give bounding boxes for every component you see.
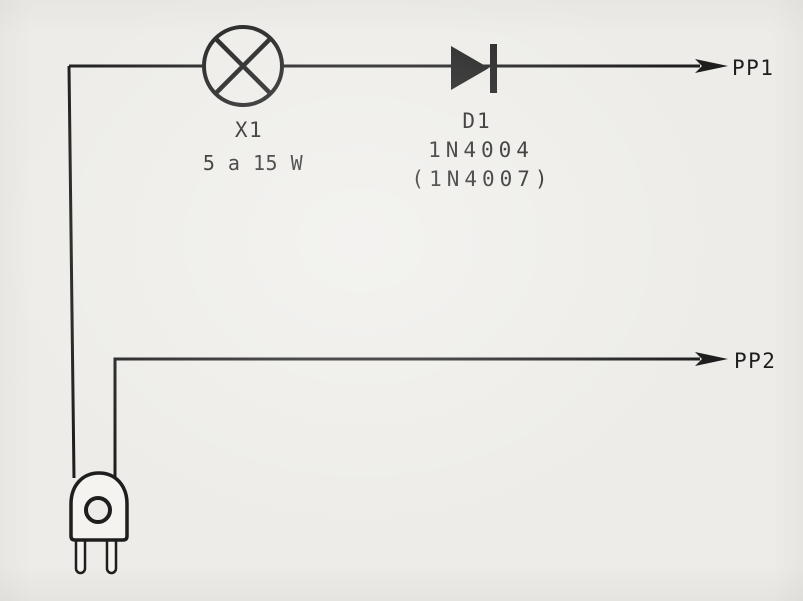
diode-cathode-bar [490, 44, 497, 93]
schematic-page: X1 5 a 15 W D1 1N4004 (1N4007) PP1 PP2 [0, 0, 803, 601]
output-pp1-label: PP1 [732, 56, 774, 80]
lamp-icon [204, 27, 282, 105]
plug-hole [86, 498, 110, 522]
circuit-diagram: X1 5 a 15 W D1 1N4004 (1N4007) PP1 PP2 [0, 0, 803, 601]
diode-part-label: 1N4004 [428, 138, 534, 162]
diode-alt-part-label: (1N4007) [411, 167, 552, 191]
lamp-ref-label: X1 [235, 118, 263, 142]
lamp-rating-label: 5 a 15 W [203, 151, 304, 175]
output-pp2-label: PP2 [734, 349, 776, 373]
diode-ref-label: D1 [462, 109, 491, 133]
